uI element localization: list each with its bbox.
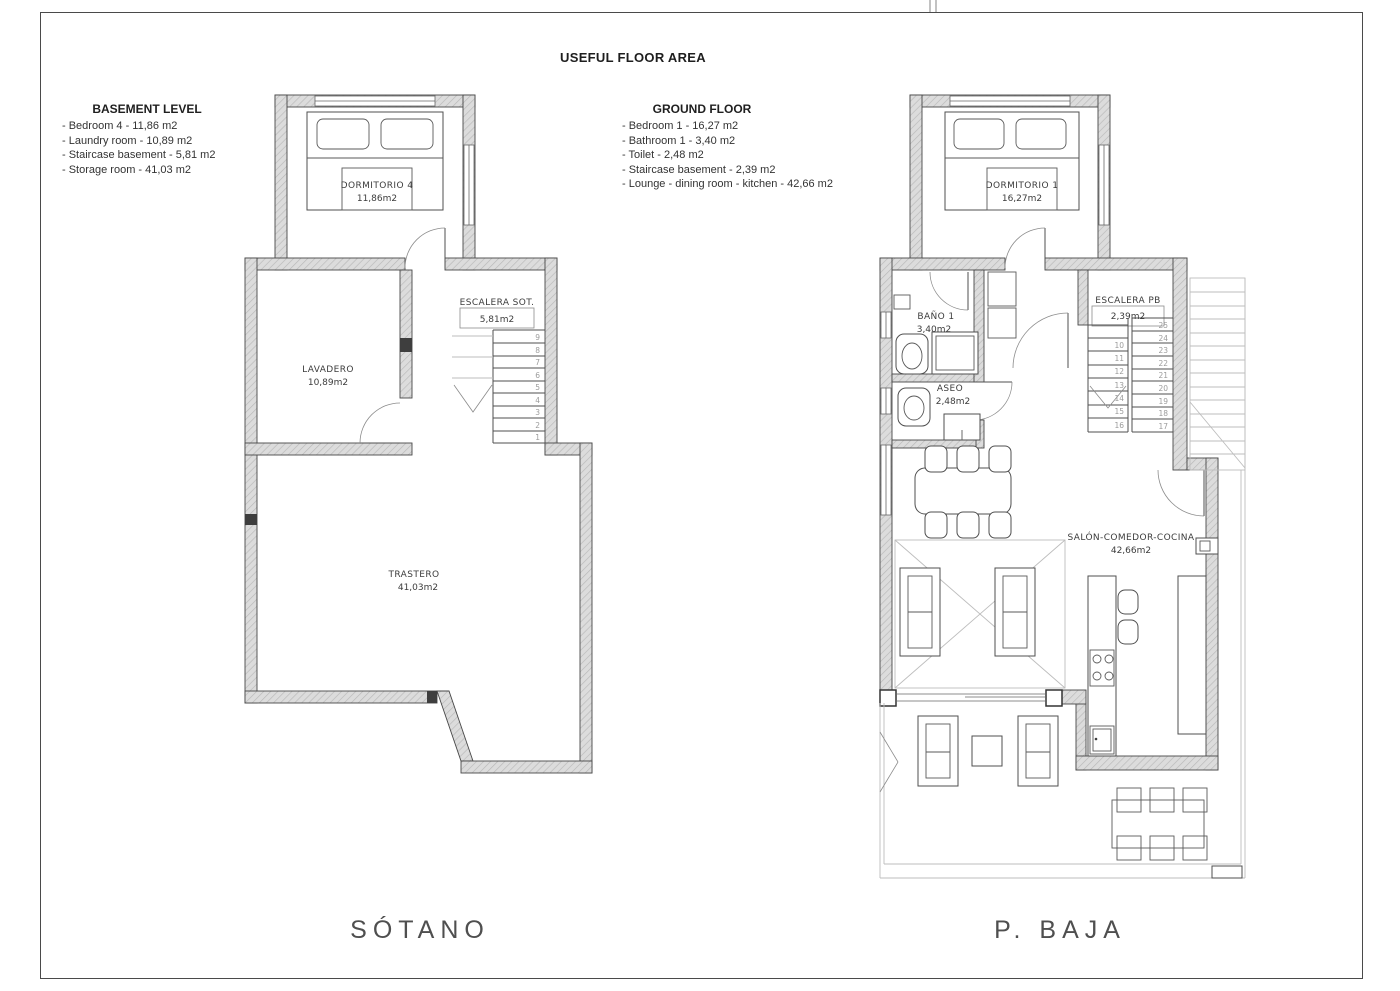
stair-number: 2 xyxy=(535,421,540,430)
floorplans-drawing: 9 8 7 6 5 4 3 2 1 DORMITORIO 4 11,86m2 L… xyxy=(0,0,1400,991)
stair-number: 14 xyxy=(1114,394,1124,403)
stair-number: 10 xyxy=(1114,341,1124,350)
room-area-escalera-sot: 5,81m2 xyxy=(480,315,515,325)
dining-chair xyxy=(989,446,1011,472)
dining-chair xyxy=(925,512,947,538)
wardrobe-cabinet xyxy=(988,308,1016,338)
dining-table xyxy=(915,468,1011,514)
stair-number: 18 xyxy=(1158,409,1168,418)
stair-number: 9 xyxy=(535,333,540,342)
bathroom-fixtures xyxy=(894,272,1016,374)
kitchen xyxy=(1088,538,1218,756)
dining-chair xyxy=(957,512,979,538)
stair-direction-arrow xyxy=(454,385,492,412)
room-label-bano1: BAÑO 1 xyxy=(917,311,954,322)
lounge-armchairs xyxy=(900,568,1035,656)
stair-number: 20 xyxy=(1158,384,1168,393)
stair-number: 8 xyxy=(535,346,540,355)
room-label-dormitorio1: DORMITORIO 1 xyxy=(986,181,1059,191)
kitchen-counter xyxy=(1178,576,1206,734)
dining-set xyxy=(915,446,1011,538)
stair-number: 7 xyxy=(535,358,540,367)
stair-number: 17 xyxy=(1158,422,1168,431)
stair-number: 3 xyxy=(535,408,540,417)
stair-number: 19 xyxy=(1158,397,1168,406)
room-label-aseo: ASEO xyxy=(937,384,963,394)
room-label-lavadero: LAVADERO xyxy=(302,365,354,375)
wall-oven xyxy=(1196,538,1218,554)
stair-number: 23 xyxy=(1158,346,1168,355)
stair-number: 6 xyxy=(535,371,540,380)
stair-number: 21 xyxy=(1158,371,1168,380)
basement-staircase: 9 8 7 6 5 4 3 2 1 xyxy=(452,308,545,443)
pillar xyxy=(400,338,412,352)
caption-sotano: SÓTANO xyxy=(330,916,510,945)
pillar xyxy=(427,691,437,703)
ground-floor-plan: 10 11 12 13 14 15 16 25 24 23 22 21 20 1… xyxy=(880,95,1245,878)
ground-staircase: 10 11 12 13 14 15 16 25 24 23 22 21 20 1… xyxy=(1088,306,1173,432)
bar-stool xyxy=(1118,590,1138,614)
bar-stool xyxy=(1118,620,1138,644)
basement-room-labels: DORMITORIO 4 11,86m2 LAVADERO 10,89m2 ES… xyxy=(302,181,534,593)
toilet-bathroom xyxy=(896,334,928,374)
stair-number: 13 xyxy=(1114,381,1124,390)
room-label-dormitorio4: DORMITORIO 4 xyxy=(341,181,414,191)
room-area-dormitorio1: 16,27m2 xyxy=(1002,194,1042,204)
dining-chair xyxy=(989,512,1011,538)
sheet-tick-marks xyxy=(930,0,936,12)
terrace-armchair xyxy=(1018,716,1058,786)
terrace-armchair xyxy=(918,716,958,786)
coffee-table xyxy=(972,736,1002,766)
room-area-dormitorio4: 11,86m2 xyxy=(357,194,397,204)
stair-number: 1 xyxy=(535,433,540,442)
outdoor-table xyxy=(1112,800,1204,848)
sliding-glass-door xyxy=(880,690,1062,706)
stair-number: 24 xyxy=(1158,334,1168,343)
room-area-escalera-pb: 2,39m2 xyxy=(1111,312,1146,322)
stair-number: 22 xyxy=(1158,359,1168,368)
shower-tray xyxy=(932,332,978,374)
room-area-trastero: 41,03m2 xyxy=(398,583,438,593)
stair-number: 16 xyxy=(1114,421,1124,430)
room-label-escalera-pb: ESCALERA PB xyxy=(1095,296,1160,306)
caption-p-baja: P. BAJA xyxy=(960,916,1160,945)
room-label-salon: SALÓN-COMEDOR-COCINA xyxy=(1068,531,1195,543)
stair-number: 5 xyxy=(535,383,540,392)
stair-number: 11 xyxy=(1114,354,1124,363)
post xyxy=(880,690,896,706)
wardrobe-cabinet xyxy=(988,272,1016,306)
dining-chair xyxy=(925,446,947,472)
room-area-lavadero: 10,89m2 xyxy=(308,378,348,388)
washbasin xyxy=(894,295,910,309)
floorplan-sheet: USEFUL FLOOR AREA BASEMENT LEVEL - Bedro… xyxy=(0,0,1400,991)
pillar xyxy=(245,514,257,525)
stair-number: 4 xyxy=(535,396,540,405)
aseo-fixtures xyxy=(898,388,980,440)
stair-number: 15 xyxy=(1114,407,1124,416)
stair-number: 12 xyxy=(1114,367,1124,376)
room-label-escalera-sot: ESCALERA SOT. xyxy=(460,298,535,308)
room-area-bano1: 3,40m2 xyxy=(917,325,952,335)
room-label-trastero: TRASTERO xyxy=(388,570,440,580)
basement-plan: 9 8 7 6 5 4 3 2 1 DORMITORIO 4 11,86m2 L… xyxy=(245,95,592,773)
exterior-staircase xyxy=(1190,278,1245,470)
room-area-salon: 42,66m2 xyxy=(1111,546,1151,556)
stair-number: 25 xyxy=(1158,321,1168,330)
dining-chair xyxy=(957,446,979,472)
post xyxy=(1046,690,1062,706)
terrace-step xyxy=(1212,866,1242,878)
room-area-aseo: 2,48m2 xyxy=(936,397,971,407)
